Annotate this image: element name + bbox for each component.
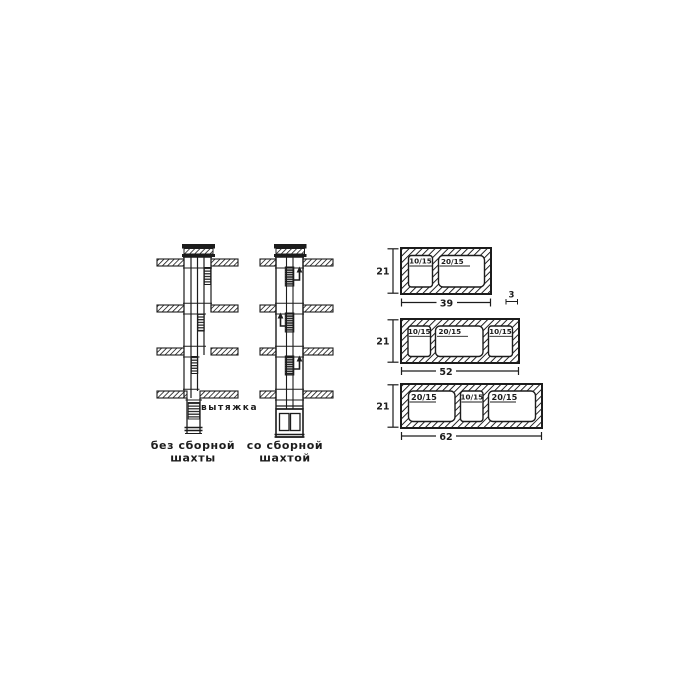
- caption-with-collector-line2: шахтой: [259, 452, 310, 465]
- height-value: 21: [376, 401, 389, 412]
- height-value: 21: [376, 336, 389, 347]
- exhaust-label: вытяжка: [201, 403, 258, 413]
- exhaust-duct: [185, 398, 203, 434]
- caption-without-collector-line2: шахты: [170, 452, 216, 465]
- opening-label: 10/15: [489, 327, 512, 336]
- vent-block-39: 10/15 20/15 21 39 3: [376, 248, 517, 309]
- basement-collector-boxes: [275, 406, 305, 437]
- vent-block-52: 10/15 20/15 10/15 21 52: [376, 319, 519, 378]
- opening-label: 20/15: [439, 327, 462, 336]
- width-value: 52: [439, 367, 452, 378]
- opening-label: 10/15: [460, 392, 483, 401]
- width-dimension: [402, 367, 519, 375]
- opening-label: 10/15: [408, 327, 431, 336]
- width-dimension: [402, 432, 542, 440]
- vent-shaft-figure: вытяжка без сборной шахты: [0, 0, 700, 700]
- width-value: 62: [439, 432, 452, 443]
- vent-block-62: 20/15 10/15 20/15 21 62: [376, 384, 542, 443]
- shaft-head-cap: [182, 244, 215, 257]
- arrow-up-icon: [297, 267, 303, 273]
- caption-without-collector-line1: без сборной: [151, 439, 235, 452]
- shaft-diagram-without-collector: вытяжка без сборной шахты: [151, 244, 258, 465]
- branch-grilles: [285, 267, 294, 375]
- arrow-up-icon: [278, 313, 284, 319]
- opening-label: 20/15: [441, 257, 464, 266]
- opening-label: 20/15: [492, 392, 518, 402]
- caption-with-collector-line1: со сборной: [247, 439, 323, 452]
- width-value: 39: [440, 298, 453, 309]
- arrow-up-icon: [297, 356, 303, 362]
- shaft-head-cap: [274, 244, 307, 257]
- scanned-page: вытяжка без сборной шахты: [0, 0, 700, 700]
- channel-grilles: [191, 268, 210, 374]
- shaft-diagram-with-collector: со сборной шахтой: [247, 244, 333, 465]
- wall-thickness-value: 3: [509, 291, 515, 301]
- height-value: 21: [376, 267, 389, 278]
- opening-label: 20/15: [411, 392, 437, 402]
- opening-label: 10/15: [409, 257, 432, 266]
